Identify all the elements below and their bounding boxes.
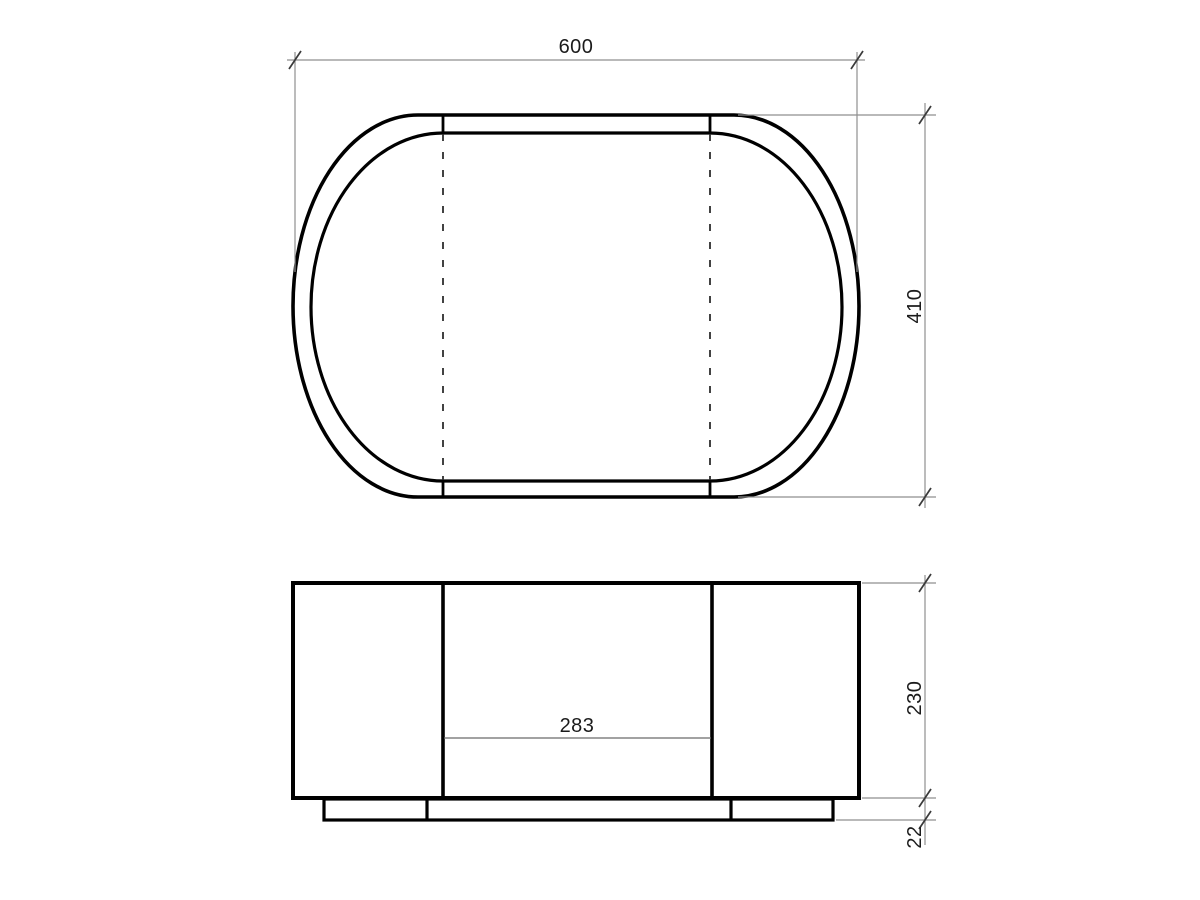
dimension-height: 230 22 (836, 574, 936, 849)
front-view-dimensions: 283 230 22 (444, 574, 936, 849)
front-body-outline (293, 583, 859, 798)
dimension-label-width: 600 (559, 36, 594, 58)
dimension-label-depth: 410 (904, 289, 926, 324)
dimension-center-width: 283 (444, 715, 711, 738)
dimension-label-base-height: 22 (904, 825, 926, 848)
tabletop-outer-outline (293, 115, 859, 497)
dimension-label-center-width: 283 (560, 715, 595, 737)
dimension-label-height: 230 (904, 681, 926, 716)
dimension-width: 600 (287, 36, 865, 272)
front-view (293, 583, 859, 820)
tabletop-inner-outline (311, 133, 842, 481)
drawing-canvas: 600 410 283 (0, 0, 1200, 900)
dimension-depth: 410 (738, 103, 936, 508)
plinth-outline (324, 799, 833, 820)
top-view (293, 114, 859, 498)
furniture-technical-drawing: 600 410 283 (0, 0, 1200, 900)
